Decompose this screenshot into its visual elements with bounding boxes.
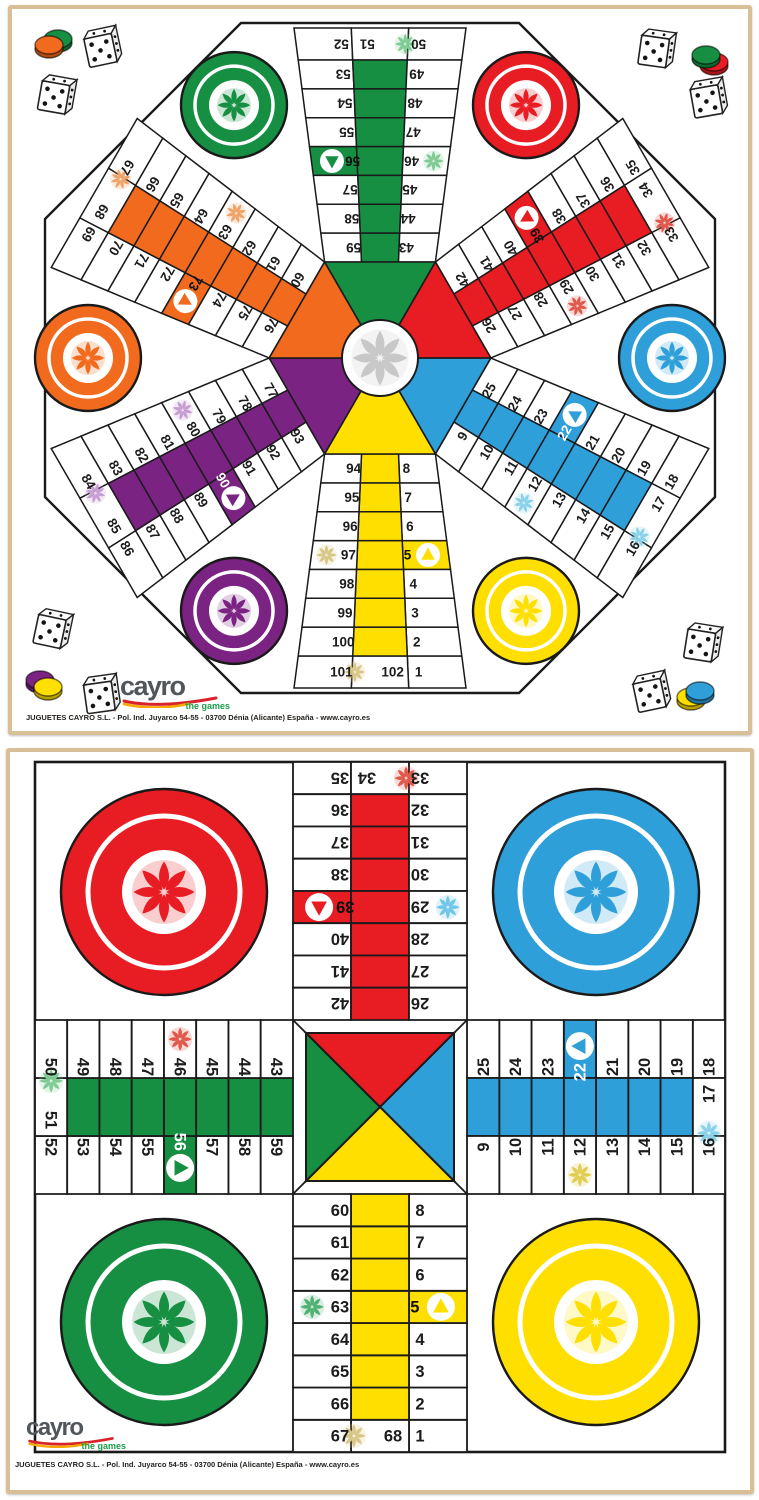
safe-cell-flower-icon (655, 341, 689, 375)
address-line: JUGUETES CAYRO S.L. - Pol. Ind. Juyarco … (15, 1460, 359, 1469)
green-home-circle (181, 52, 287, 158)
svg-text:29: 29 (411, 897, 429, 915)
svg-text:8: 8 (403, 461, 411, 476)
svg-text:58: 58 (235, 1138, 253, 1156)
svg-text:28: 28 (411, 930, 429, 948)
svg-text:52: 52 (334, 36, 349, 51)
die-icon (33, 608, 74, 650)
svg-text:43: 43 (398, 240, 414, 255)
svg-text:53: 53 (74, 1138, 92, 1156)
safe-cell-flower-icon (509, 88, 543, 122)
svg-text:33: 33 (411, 768, 429, 786)
center-rosette (342, 320, 418, 396)
safe-cell-flower-icon (132, 1290, 196, 1354)
safe-cell-flower-icon (217, 594, 251, 628)
yellow-home-circle (473, 558, 579, 664)
svg-text:57: 57 (343, 182, 358, 197)
svg-text:94: 94 (346, 461, 362, 476)
game-chips-icon (26, 671, 62, 700)
svg-text:61: 61 (331, 1234, 349, 1252)
svg-text:51: 51 (359, 36, 375, 51)
svg-text:51: 51 (41, 1111, 59, 1129)
svg-text:26: 26 (411, 994, 429, 1012)
svg-text:102: 102 (381, 665, 404, 680)
game-chips-icon (35, 30, 72, 58)
svg-text:50: 50 (411, 36, 426, 51)
svg-text:3: 3 (411, 605, 419, 620)
die-icon (638, 28, 677, 68)
svg-text:54: 54 (337, 96, 353, 111)
orange-home-circle (35, 305, 141, 411)
svg-text:6: 6 (406, 519, 414, 534)
game-chips-icon (692, 46, 728, 75)
svg-text:54: 54 (106, 1138, 124, 1157)
svg-text:57: 57 (203, 1138, 221, 1156)
svg-text:56: 56 (345, 153, 361, 168)
svg-text:62: 62 (331, 1266, 349, 1284)
svg-text:55: 55 (138, 1138, 156, 1156)
safe-cell-flower-icon (316, 545, 337, 566)
svg-text:4: 4 (410, 577, 418, 592)
svg-text:67: 67 (331, 1428, 349, 1446)
svg-text:37: 37 (331, 833, 349, 851)
yellow-arm: 11021012100399498597696795894 (294, 454, 466, 688)
svg-text:42: 42 (331, 994, 349, 1012)
safe-cell-flower-icon (509, 594, 543, 628)
safe-cell-flower-icon (351, 329, 408, 386)
svg-text:95: 95 (344, 490, 360, 505)
svg-text:45: 45 (402, 182, 418, 197)
safe-cell-flower-icon (168, 1027, 192, 1051)
svg-text:7: 7 (404, 490, 412, 505)
svg-text:14: 14 (636, 1137, 654, 1156)
green-home-circle (61, 1219, 267, 1425)
svg-text:17: 17 (701, 1085, 719, 1103)
svg-text:60: 60 (331, 1202, 349, 1220)
svg-text:96: 96 (343, 519, 359, 534)
svg-text:49: 49 (409, 67, 424, 82)
svg-text:25: 25 (475, 1058, 493, 1076)
svg-text:68: 68 (384, 1428, 402, 1446)
svg-text:19: 19 (668, 1058, 686, 1076)
svg-text:10: 10 (507, 1138, 525, 1156)
svg-text:64: 64 (331, 1331, 350, 1349)
svg-text:63: 63 (331, 1299, 349, 1317)
svg-text:52: 52 (41, 1138, 59, 1156)
svg-text:45: 45 (203, 1058, 221, 1076)
svg-text:97: 97 (341, 548, 356, 563)
game-chips-icon (677, 682, 714, 710)
svg-text:44: 44 (235, 1058, 253, 1077)
red-arm: 3534333632373138303929402841274226 (293, 762, 467, 1020)
four-player-parchis-board: 3534333632373138303929402841274226181716… (6, 748, 754, 1494)
svg-text:59: 59 (346, 240, 361, 255)
cayro-logo: cayro the games (120, 673, 230, 711)
svg-text:50: 50 (41, 1058, 59, 1076)
svg-text:16: 16 (701, 1138, 719, 1156)
svg-text:35: 35 (331, 768, 349, 786)
svg-text:9: 9 (475, 1142, 493, 1151)
die-icon (37, 74, 77, 115)
address-line: JUGUETES CAYRO S.L. - Pol. Ind. Juyarco … (26, 713, 370, 722)
svg-text:2: 2 (413, 634, 421, 649)
svg-text:23: 23 (539, 1058, 557, 1076)
svg-text:59: 59 (267, 1138, 285, 1156)
svg-text:39: 39 (336, 897, 354, 915)
die-icon (82, 25, 123, 67)
svg-text:43: 43 (267, 1058, 285, 1076)
svg-text:34: 34 (357, 768, 376, 786)
yellow-arm: 16867266365464563662761860 (293, 1194, 467, 1452)
svg-text:36: 36 (331, 801, 349, 819)
svg-text:53: 53 (335, 67, 351, 82)
svg-text:40: 40 (331, 930, 349, 948)
safe-cell-flower-icon (564, 860, 628, 924)
svg-text:7: 7 (415, 1234, 424, 1252)
svg-text:31: 31 (411, 833, 429, 851)
blue-arm: 181716191520142113221223112410259 (467, 1020, 725, 1194)
yellow-home-circle (493, 1219, 699, 1425)
svg-text:48: 48 (407, 96, 423, 111)
svg-text:5: 5 (410, 1299, 419, 1317)
svg-text:58: 58 (344, 211, 360, 226)
safe-cell-flower-icon (71, 341, 105, 375)
svg-text:65: 65 (331, 1363, 349, 1381)
svg-text:100: 100 (332, 634, 355, 649)
svg-text:6: 6 (415, 1266, 424, 1284)
svg-text:1: 1 (415, 1428, 424, 1446)
svg-text:56: 56 (170, 1133, 188, 1151)
die-icon (82, 673, 121, 713)
red-home-circle (473, 52, 579, 158)
svg-text:55: 55 (339, 124, 355, 139)
svg-text:46: 46 (170, 1058, 188, 1076)
svg-text:3: 3 (415, 1363, 424, 1381)
svg-text:32: 32 (411, 801, 429, 819)
svg-text:13: 13 (604, 1138, 622, 1156)
six-player-parchis-board: 5251505349544855475646574558445943353433… (8, 5, 752, 735)
safe-cell-flower-icon (436, 895, 460, 919)
die-icon (689, 77, 729, 118)
svg-text:4: 4 (415, 1331, 425, 1349)
four-player-board-graphic: 3534333632373138303929402841274226181716… (10, 752, 750, 1490)
safe-cell-flower-icon (300, 1295, 324, 1319)
svg-text:47: 47 (138, 1058, 156, 1076)
svg-text:1: 1 (415, 665, 423, 680)
die-icon (684, 622, 723, 663)
svg-text:47: 47 (406, 124, 421, 139)
svg-text:5: 5 (404, 548, 412, 563)
svg-text:44: 44 (400, 211, 416, 226)
red-home-circle (61, 789, 267, 995)
svg-text:18: 18 (701, 1058, 719, 1076)
svg-text:48: 48 (106, 1058, 124, 1076)
svg-text:41: 41 (331, 962, 349, 980)
safe-cell-flower-icon (423, 151, 444, 172)
svg-text:38: 38 (331, 865, 349, 883)
green-arm: 5251505349544855475646574558445943 (35, 1020, 293, 1194)
svg-text:30: 30 (411, 865, 429, 883)
safe-cell-flower-icon (217, 88, 251, 122)
svg-text:24: 24 (507, 1057, 525, 1076)
svg-text:99: 99 (337, 605, 352, 620)
svg-text:12: 12 (572, 1138, 590, 1156)
purple-home-circle (181, 558, 287, 664)
safe-cell-flower-icon (132, 860, 196, 924)
svg-text:27: 27 (411, 962, 429, 980)
blue-home-circle (619, 305, 725, 411)
blue-home-circle (493, 789, 699, 995)
svg-text:66: 66 (331, 1395, 349, 1413)
six-player-board-graphic: 5251505349544855475646574558445943353433… (12, 9, 748, 731)
svg-text:49: 49 (74, 1058, 92, 1076)
svg-text:20: 20 (636, 1058, 654, 1076)
svg-text:11: 11 (539, 1138, 557, 1155)
svg-text:22: 22 (572, 1063, 590, 1081)
svg-text:101: 101 (330, 665, 353, 680)
die-icon (631, 670, 672, 712)
svg-text:98: 98 (339, 577, 355, 592)
svg-text:8: 8 (415, 1202, 424, 1220)
svg-text:15: 15 (668, 1138, 686, 1156)
svg-text:2: 2 (415, 1395, 424, 1413)
green-arm: 5251505349544855475646574558445943 (294, 28, 466, 262)
safe-cell-flower-icon (564, 1290, 628, 1354)
svg-text:46: 46 (404, 153, 420, 168)
safe-cell-flower-icon (568, 1163, 592, 1187)
center-goal-square (293, 1020, 467, 1194)
product-photo-parchis-boards: 5251505349544855475646574558445943353433… (0, 0, 759, 1500)
cayro-logo: cayro the games (26, 1416, 126, 1451)
svg-text:21: 21 (604, 1058, 622, 1076)
